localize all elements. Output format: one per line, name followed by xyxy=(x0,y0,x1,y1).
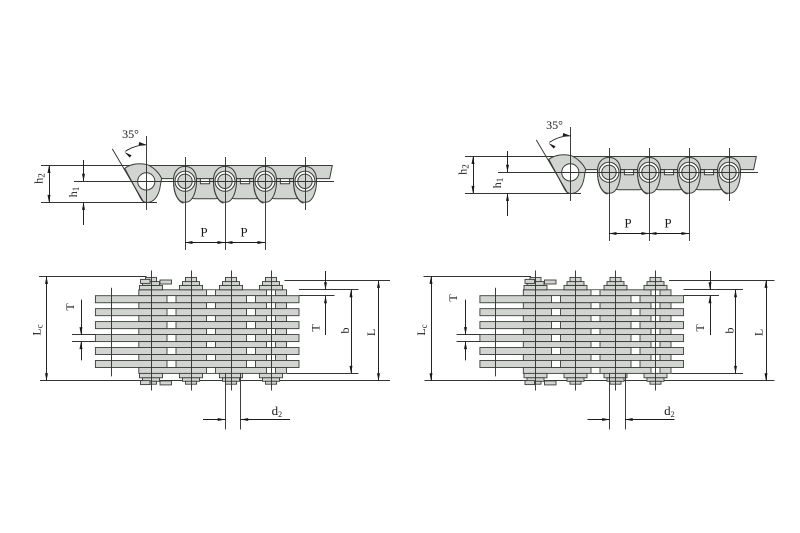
svg-text:L: L xyxy=(751,329,765,336)
svg-text:T: T xyxy=(308,324,322,332)
svg-text:35°: 35° xyxy=(122,127,139,141)
svg-text:P: P xyxy=(200,225,207,240)
svg-text:P: P xyxy=(624,216,631,231)
svg-text:P: P xyxy=(240,225,247,240)
svg-text:L: L xyxy=(364,329,378,336)
svg-text:T: T xyxy=(63,303,77,311)
svg-text:b: b xyxy=(722,328,736,334)
svg-text:T: T xyxy=(446,294,460,302)
svg-text:P: P xyxy=(664,216,671,231)
svg-text:T: T xyxy=(693,324,707,332)
svg-text:35°: 35° xyxy=(546,118,563,132)
svg-text:b: b xyxy=(338,328,352,334)
